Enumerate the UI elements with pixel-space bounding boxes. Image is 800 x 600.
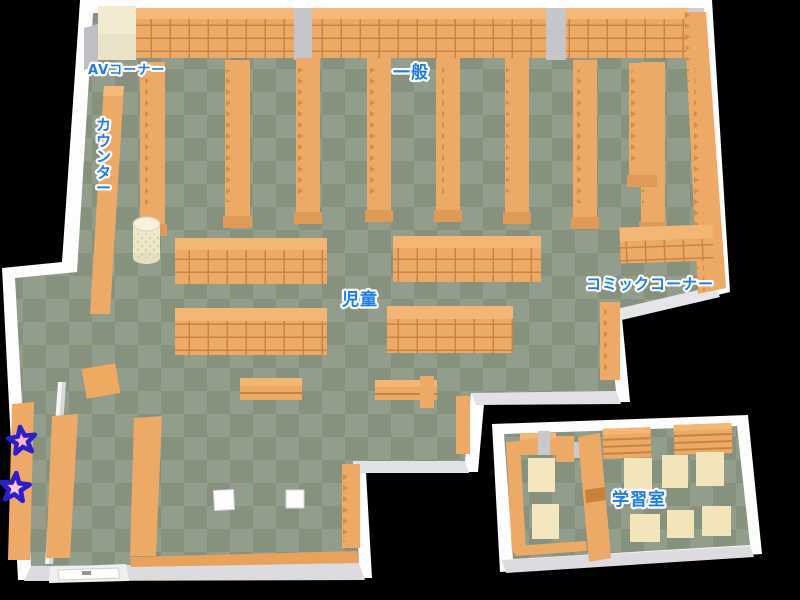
bookshelf [365,58,393,222]
bookshelf [138,62,167,236]
bookshelf [294,58,322,224]
display-rack [133,217,160,264]
study-table [528,458,555,492]
label-av-corner: AVコーナー [88,63,165,78]
pillar [546,8,566,60]
stool [213,489,234,510]
bookshelf [503,58,531,224]
bookshelf [342,464,360,548]
bookshelf-slatted [602,427,651,459]
wall-shelves-top [133,8,704,60]
bookshelf [223,60,252,228]
pillar [294,8,312,60]
bookshelf-slatted [673,423,732,455]
bookshelf [556,436,574,462]
bookshelf [456,396,470,454]
bookshelf [434,58,462,222]
bookshelf-low [175,308,327,355]
bookshelf-low [387,306,513,353]
study-table [532,504,559,539]
entrance-step [49,564,129,583]
library-floor-map: AVコーナー 一般 カウンター 児童 コミックコーナー 学習室 [0,0,800,600]
wall-front-step1 [353,461,469,473]
bookshelf [133,8,294,58]
study-desk [662,455,688,488]
reading-table [82,363,121,398]
label-comic-corner: コミックコーナー [586,275,714,293]
bookshelf [420,376,434,408]
label-study-room: 学習室 [612,489,666,510]
label-children: 児童 [341,289,378,310]
study-desk [696,452,724,486]
stool [286,490,304,508]
bookshelf [566,8,688,58]
study-desk [667,510,694,538]
study-desk [702,506,731,536]
bookshelf-low [619,224,713,263]
bookshelf [312,8,546,58]
bookshelf-low [393,236,541,282]
label-general: 一般 [393,62,429,83]
study-desk [630,514,660,542]
pillar [538,431,550,455]
bookshelf [627,63,657,187]
bench [240,378,302,400]
bookshelf [571,60,599,229]
label-counter: カウンター [96,116,112,197]
bookshelf-low [175,238,327,284]
bookshelf [600,302,620,380]
study-desk [624,458,652,492]
wall-front-step2 [471,391,621,405]
